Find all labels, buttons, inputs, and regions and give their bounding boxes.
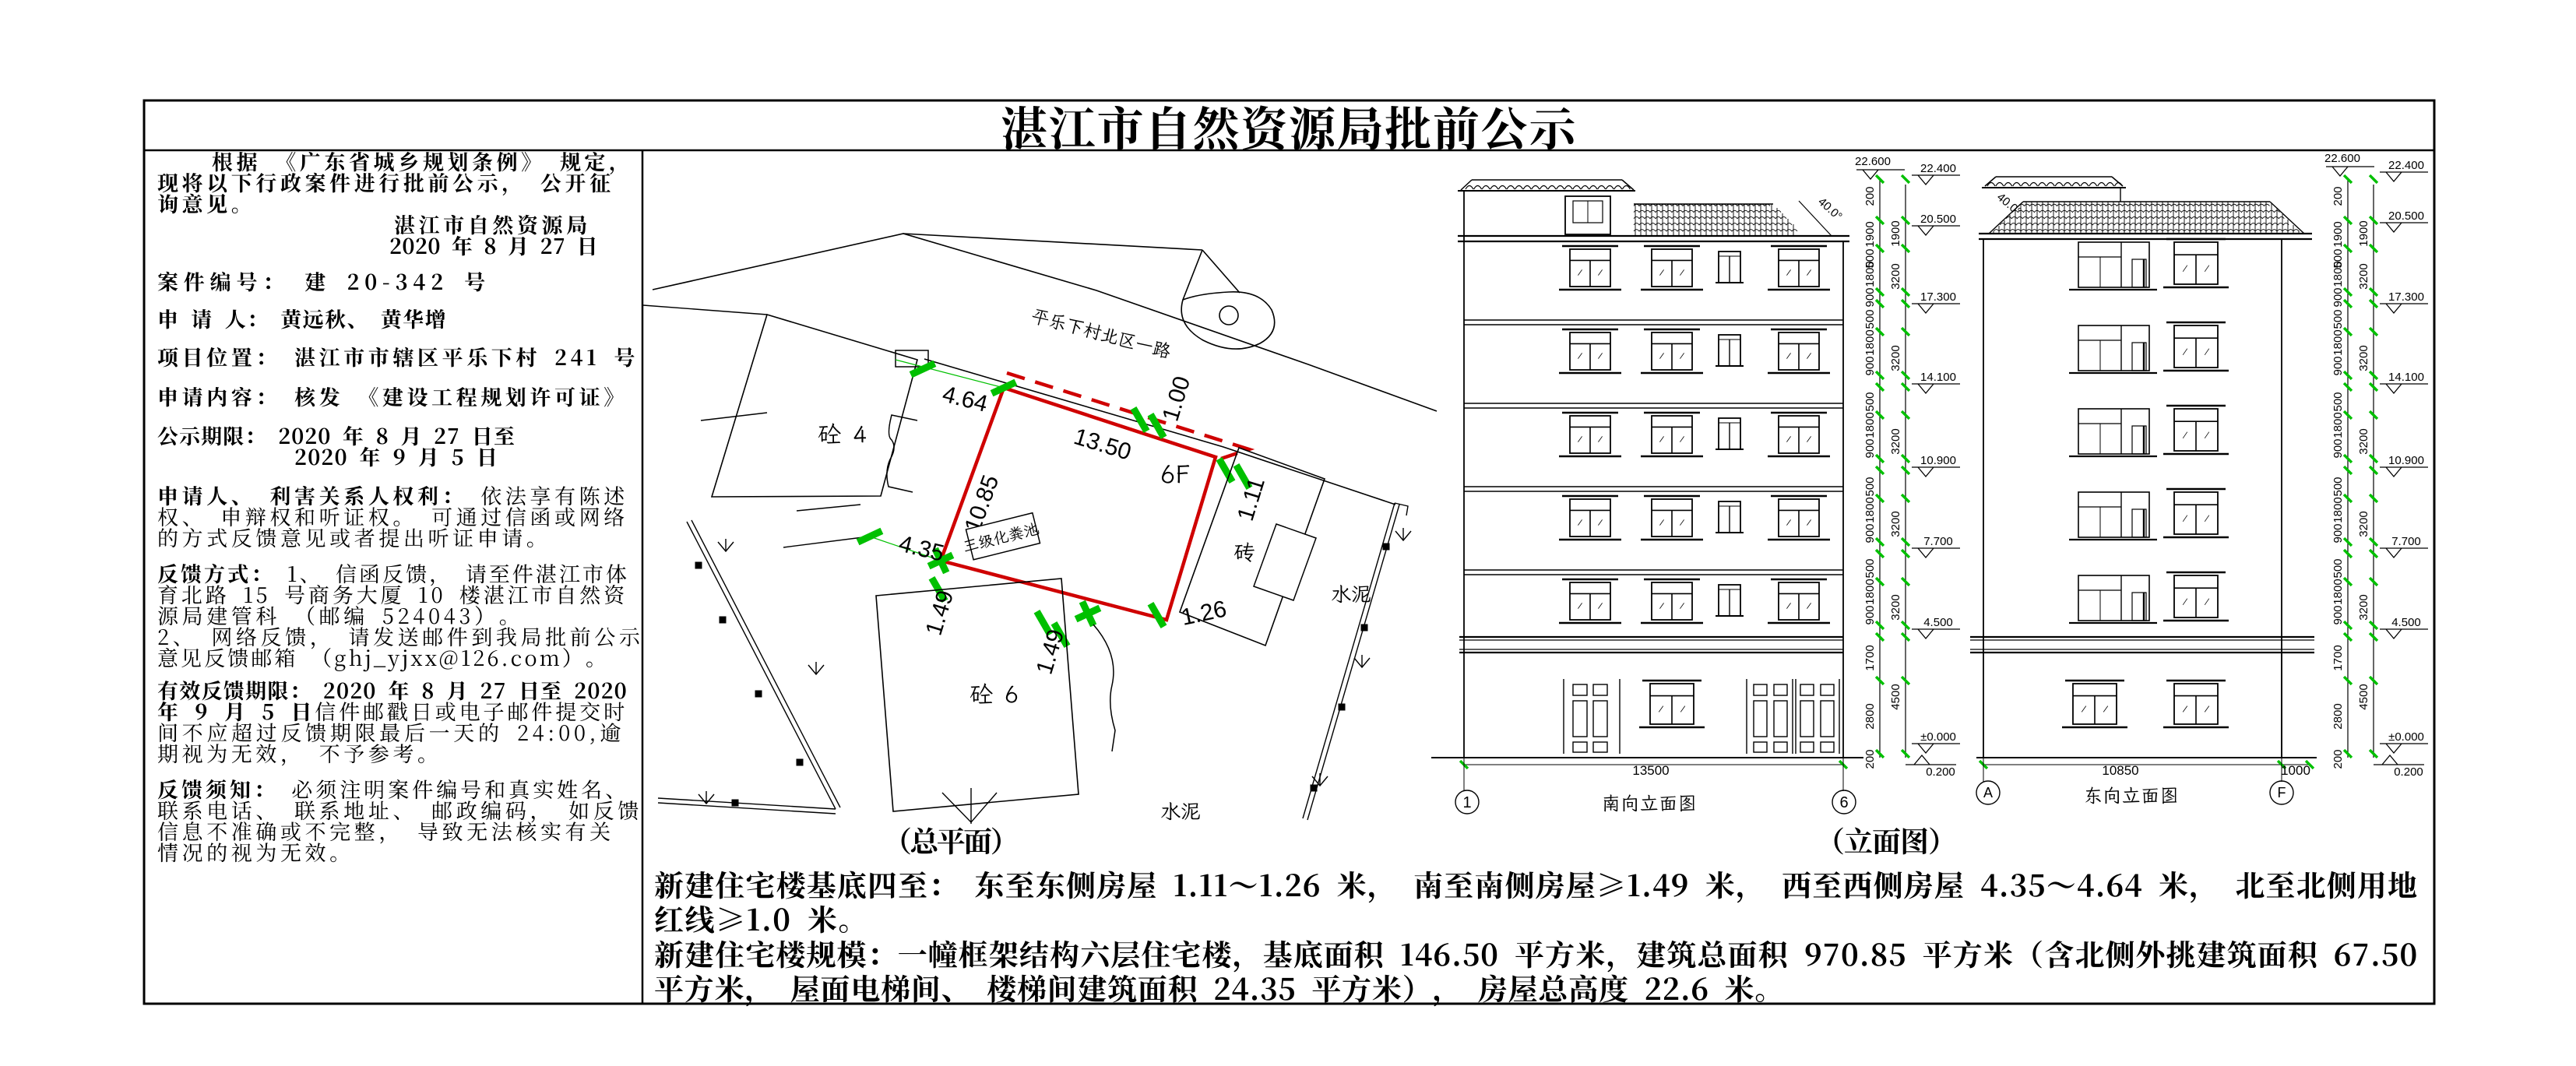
svg-text:4.500: 4.500: [2391, 616, 2421, 629]
svg-text:1.11: 1.11: [1233, 475, 1270, 524]
svg-text:1.49: 1.49: [921, 587, 959, 638]
svg-text:4500: 4500: [2357, 684, 2370, 709]
svg-text:13.50: 13.50: [1071, 424, 1134, 466]
svg-text:1800: 1800: [1863, 579, 1877, 604]
svg-text:14.100: 14.100: [2388, 371, 2424, 384]
svg-text:±0.000: ±0.000: [2388, 730, 2424, 744]
svg-text:3200: 3200: [2357, 428, 2370, 454]
svg-text:1800: 1800: [2331, 412, 2345, 438]
svg-text:1800: 1800: [1863, 261, 1877, 287]
svg-text:1900: 1900: [2331, 221, 2345, 247]
svg-text:1000: 1000: [2281, 763, 2310, 778]
svg-text:200: 200: [1863, 186, 1877, 206]
svg-text:10.900: 10.900: [2388, 454, 2424, 467]
svg-text:4.35: 4.35: [896, 531, 947, 567]
svg-text:900: 900: [1863, 438, 1877, 458]
svg-text:200: 200: [1863, 749, 1877, 769]
svg-text:900: 900: [2331, 605, 2345, 624]
svg-text:6: 6: [1839, 794, 1848, 811]
svg-text:1: 1: [1462, 794, 1471, 811]
svg-text:1900: 1900: [2357, 220, 2370, 246]
svg-text:500: 500: [1863, 392, 1877, 411]
svg-text:17.300: 17.300: [2388, 290, 2424, 304]
svg-text:200: 200: [2331, 749, 2345, 769]
svg-text:1800: 1800: [2331, 329, 2345, 355]
svg-text:900: 900: [1863, 356, 1877, 375]
svg-text:1800: 1800: [1863, 412, 1877, 438]
svg-text:0.200: 0.200: [2394, 765, 2423, 779]
svg-text:1700: 1700: [1863, 645, 1877, 670]
svg-text:3200: 3200: [1889, 345, 1902, 371]
svg-text:13500: 13500: [1632, 763, 1669, 778]
svg-text:3200: 3200: [2357, 594, 2370, 620]
svg-text:200: 200: [2331, 186, 2345, 206]
svg-text:500: 500: [2331, 392, 2345, 411]
svg-text:500: 500: [2331, 309, 2345, 329]
svg-text:1800: 1800: [2331, 497, 2345, 522]
svg-text:900: 900: [2331, 287, 2345, 307]
svg-text:2800: 2800: [1863, 703, 1877, 729]
svg-text:14.100: 14.100: [1920, 371, 1956, 384]
svg-text:0.200: 0.200: [1926, 765, 1955, 779]
svg-text:3200: 3200: [1889, 263, 1902, 289]
svg-text:3200: 3200: [1889, 511, 1902, 537]
svg-text:900: 900: [2331, 356, 2345, 375]
svg-text:4500: 4500: [1889, 684, 1902, 709]
svg-text:7.700: 7.700: [2391, 535, 2421, 548]
svg-text:F: F: [2278, 785, 2286, 800]
svg-text:900: 900: [2331, 438, 2345, 458]
svg-text:500: 500: [1863, 477, 1877, 496]
svg-text:500: 500: [1863, 558, 1877, 578]
svg-text:40.0°: 40.0°: [1815, 195, 1845, 223]
svg-text:4.500: 4.500: [1923, 616, 1953, 629]
svg-text:3200: 3200: [2357, 345, 2370, 371]
svg-text:500: 500: [2331, 558, 2345, 578]
svg-text:22.400: 22.400: [1920, 162, 1956, 175]
svg-text:10850: 10850: [2102, 763, 2138, 778]
svg-text:10.900: 10.900: [1920, 454, 1956, 467]
svg-text:1900: 1900: [1889, 220, 1902, 246]
svg-text:1.00: 1.00: [1158, 373, 1196, 424]
svg-text:3200: 3200: [1889, 428, 1902, 454]
svg-text:1700: 1700: [2331, 645, 2345, 670]
svg-text:1800: 1800: [1863, 329, 1877, 355]
svg-text:3200: 3200: [2357, 511, 2370, 537]
svg-text:900: 900: [1863, 605, 1877, 624]
svg-text:1800: 1800: [1863, 497, 1877, 522]
svg-text:7.700: 7.700: [1923, 535, 1953, 548]
svg-text:900: 900: [1863, 287, 1877, 307]
svg-text:1.26: 1.26: [1179, 596, 1229, 630]
svg-text:500: 500: [1863, 309, 1877, 329]
svg-text:500: 500: [2331, 477, 2345, 496]
svg-text:20.500: 20.500: [1920, 213, 1956, 226]
svg-text:3200: 3200: [1889, 594, 1902, 620]
svg-text:3200: 3200: [2357, 263, 2370, 289]
svg-text:±0.000: ±0.000: [1920, 730, 1956, 744]
svg-text:17.300: 17.300: [1920, 290, 1956, 304]
svg-text:1800: 1800: [2331, 261, 2345, 287]
svg-text:1.49: 1.49: [1032, 626, 1070, 677]
svg-text:900: 900: [2331, 523, 2345, 543]
svg-text:900: 900: [1863, 523, 1877, 543]
svg-text:20.500: 20.500: [2388, 209, 2424, 223]
svg-text:A: A: [1983, 785, 1993, 800]
svg-text:22.600: 22.600: [1855, 155, 1891, 168]
svg-text:1900: 1900: [1863, 221, 1877, 247]
svg-text:4.64: 4.64: [940, 382, 991, 417]
svg-text:1800: 1800: [2331, 579, 2345, 604]
svg-text:2800: 2800: [2331, 703, 2345, 729]
svg-text:22.600: 22.600: [2324, 152, 2360, 165]
svg-text:22.400: 22.400: [2388, 159, 2424, 172]
